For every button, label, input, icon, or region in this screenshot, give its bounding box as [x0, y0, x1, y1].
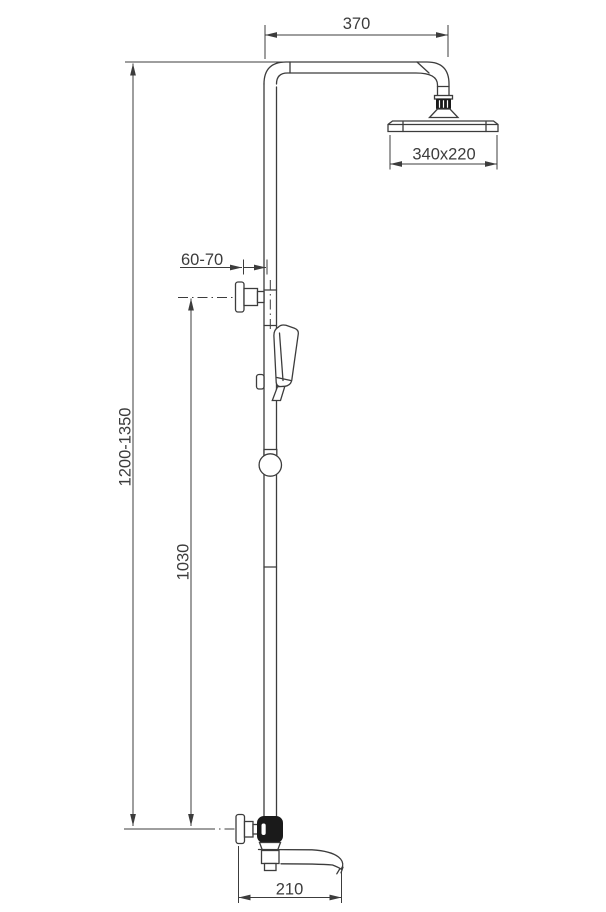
head-connector-nut: [430, 96, 459, 118]
dimension-wall-distance: 60-70: [180, 251, 267, 275]
dimension-total-height: 1200-1350: [117, 62, 287, 826]
lower-wall-flange: [236, 815, 245, 844]
dim-label-head-size: 340x220: [412, 146, 475, 164]
dimension-head-size: 340x220: [390, 135, 497, 170]
shower-arm: [264, 62, 449, 96]
hand-shower: [257, 325, 299, 400]
dim-label-wall-distance: 60-70: [181, 251, 223, 269]
slide-rail-slider: [259, 450, 281, 477]
hand-shower-holder: [257, 375, 265, 390]
shower-column-dimension-drawing: 370 340x220 60-70 1200-1350 1030 210: [0, 0, 606, 912]
dim-label-arm-reach: 370: [343, 15, 371, 33]
dimension-arm-reach: 370: [265, 15, 448, 59]
overhead-shower-head: [388, 121, 498, 132]
dim-label-spout-reach: 210: [276, 881, 304, 899]
dimension-slide-bar-height: 1030: [175, 298, 237, 827]
drawing-canvas: 370 340x220 60-70 1200-1350 1030 210: [0, 0, 606, 912]
dim-label-slide-bar-height: 1030: [175, 544, 193, 581]
upper-wall-bracket: [236, 282, 265, 312]
dimension-spout-reach: 210: [124, 829, 342, 903]
mixer-valve-and-spout: [236, 815, 343, 874]
hand-shower-handle: [272, 386, 285, 400]
diverter-knob: [258, 817, 283, 843]
dim-label-total-height: 1200-1350: [117, 408, 135, 487]
